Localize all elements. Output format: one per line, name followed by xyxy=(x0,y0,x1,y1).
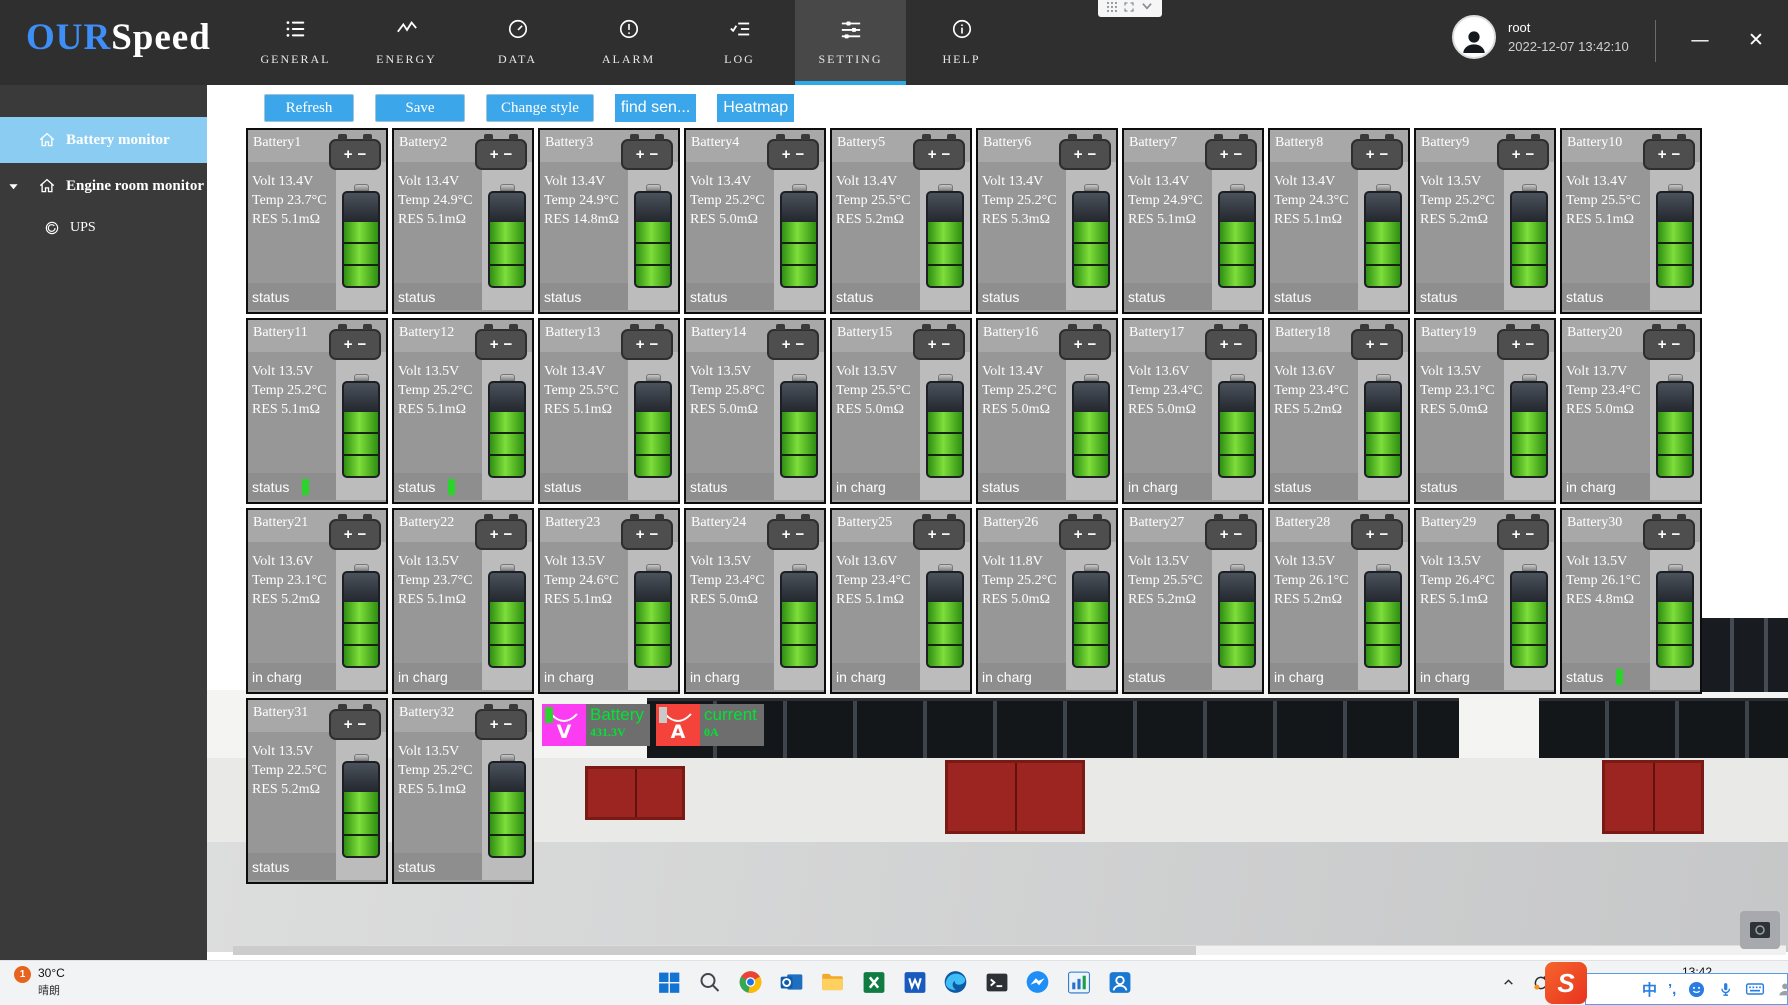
battery-card[interactable]: Battery21 +− Volt 13.6V Temp 23.1°C RES … xyxy=(246,508,388,694)
info-icon xyxy=(951,18,973,45)
battery-temperature: Temp 25.2°C xyxy=(398,381,482,400)
battery-card[interactable]: Battery4 +− Volt 13.4V Temp 25.2°C RES 5… xyxy=(684,128,826,314)
battery-voltage: Volt 13.4V xyxy=(252,172,336,191)
voltage-gauge-value: 431.3V xyxy=(590,725,644,739)
battery-terminals-icon: +− xyxy=(913,139,965,170)
battery-graphic xyxy=(1066,542,1116,690)
battery-graphic xyxy=(628,542,678,690)
terminal-icon[interactable] xyxy=(983,968,1011,996)
battery-card[interactable]: Battery13 +− Volt 13.4V Temp 25.5°C RES … xyxy=(538,318,680,504)
battery-card[interactable]: Battery15 +− Volt 13.5V Temp 25.5°C RES … xyxy=(830,318,972,504)
battery-graphic xyxy=(336,352,386,500)
battery-name: Battery28 xyxy=(1270,510,1330,531)
keyboard-icon[interactable] xyxy=(1745,979,1765,999)
gauge-indicator-bar xyxy=(659,707,667,723)
voltmeter-icon: V xyxy=(542,704,586,746)
taskbar: 1 30°C 晴朗 中 拼 13:42 中 ’, 10 S xyxy=(0,960,1788,1005)
battery-terminals-icon: +− xyxy=(1643,519,1695,550)
battery-status: in charg xyxy=(836,479,886,495)
edge-icon[interactable] xyxy=(942,968,970,996)
battery-temperature: Temp 26.1°C xyxy=(1274,571,1358,590)
battery-temperature: Temp 25.2°C xyxy=(1420,191,1504,210)
battery-resistance: RES 5.2mΩ xyxy=(1274,400,1358,419)
battery-resistance: RES 5.0mΩ xyxy=(690,210,774,229)
battery-status-row: in charg xyxy=(248,663,336,690)
battery-resistance: RES 4.8mΩ xyxy=(1566,590,1650,609)
battery-graphic xyxy=(1504,352,1554,500)
battery-status-row: in charg xyxy=(1416,663,1504,690)
battery-name: Battery29 xyxy=(1416,510,1476,531)
battery-card[interactable]: Battery14 +− Volt 13.5V Temp 25.8°C RES … xyxy=(684,318,826,504)
titlebar-divider xyxy=(1655,20,1656,62)
battery-name: Battery8 xyxy=(1270,130,1323,151)
battery-card[interactable]: Battery31 +− Volt 13.5V Temp 22.5°C RES … xyxy=(246,698,388,884)
battery-temperature: Temp 25.8°C xyxy=(690,381,774,400)
battery-status: status xyxy=(1128,289,1165,305)
battery-temperature: Temp 23.7°C xyxy=(252,191,336,210)
notification-badge[interactable]: 1 xyxy=(14,966,31,983)
start-icon[interactable] xyxy=(655,968,683,996)
battery-status-row: status xyxy=(1416,473,1504,500)
battery-card[interactable]: Battery16 +− Volt 13.4V Temp 25.2°C RES … xyxy=(976,318,1118,504)
battery-graphic xyxy=(774,352,824,500)
tab-log[interactable]: LOG xyxy=(684,0,795,85)
taskbar-icons xyxy=(655,968,1134,996)
battery-voltage: Volt 13.5V xyxy=(398,552,482,571)
battery-resistance: RES 5.0mΩ xyxy=(1128,400,1212,419)
battery-temperature: Temp 23.4°C xyxy=(836,571,920,590)
battery-resistance: RES 5.1mΩ xyxy=(398,210,482,229)
total-voltage-gauge[interactable]: V Battery 431.3V xyxy=(542,704,650,746)
battery-status-row: in charg xyxy=(832,473,920,500)
battery-card[interactable]: Battery1 +− Volt 13.4V Temp 23.7°C RES 5… xyxy=(246,128,388,314)
battery-terminals-icon: +− xyxy=(621,519,673,550)
battery-temperature: Temp 24.9°C xyxy=(1128,191,1212,210)
dots-grid-icon xyxy=(1106,0,1118,18)
battery-status: status xyxy=(1274,289,1311,305)
battery-status: in charg xyxy=(690,669,740,685)
floating-capture-widget[interactable] xyxy=(1098,0,1162,17)
battery-card[interactable]: Battery28 +− Volt 13.5V Temp 26.1°C RES … xyxy=(1268,508,1410,694)
battery-name: Battery19 xyxy=(1416,320,1476,341)
tab-general[interactable]: GENERAL xyxy=(240,0,351,85)
battery-name: Battery13 xyxy=(540,320,600,341)
battery-card[interactable]: Battery29 +− Volt 13.5V Temp 26.4°C RES … xyxy=(1414,508,1556,694)
battery-graphic xyxy=(482,542,532,690)
change-style-button[interactable]: Change style xyxy=(486,94,594,122)
weather-widget[interactable]: 1 30°C 晴朗 xyxy=(38,966,65,998)
battery-graphic xyxy=(1358,162,1408,310)
battery-status: status xyxy=(544,289,581,305)
battery-temperature: Temp 23.1°C xyxy=(1420,381,1504,400)
battery-name: Battery32 xyxy=(394,700,454,721)
tab-help[interactable]: HELP xyxy=(906,0,1017,85)
battery-charge-indicator xyxy=(448,479,455,495)
battery-resistance: RES 5.0mΩ xyxy=(1420,400,1504,419)
current-gauge-value: 0A xyxy=(704,725,758,739)
close-button[interactable]: ✕ xyxy=(1734,22,1778,58)
battery-resistance: RES 5.0mΩ xyxy=(982,590,1066,609)
battery-name: Battery30 xyxy=(1562,510,1622,531)
battery-voltage: Volt 13.5V xyxy=(1420,172,1504,191)
battery-status-row: in charg xyxy=(832,663,920,690)
battery-name: Battery22 xyxy=(394,510,454,531)
scrollbar-thumb[interactable] xyxy=(233,946,1196,955)
battery-voltage: Volt 13.5V xyxy=(398,362,482,381)
battery-voltage: Volt 13.4V xyxy=(544,362,628,381)
battery-card[interactable]: Battery10 +− Volt 13.4V Temp 25.5°C RES … xyxy=(1560,128,1702,314)
battery-graphic xyxy=(1212,542,1262,690)
toolbar: RefreshSaveChange stylefind sen...Heatma… xyxy=(264,94,794,122)
battery-name: Battery1 xyxy=(248,130,301,151)
battery-status: in charg xyxy=(398,669,448,685)
battery-resistance: RES 5.0mΩ xyxy=(690,400,774,419)
battery-graphic xyxy=(336,542,386,690)
ups-icon xyxy=(44,220,60,236)
battery-card[interactable]: Battery11 +− Volt 13.5V Temp 25.2°C RES … xyxy=(246,318,388,504)
battery-card[interactable]: Battery22 +− Volt 13.5V Temp 23.7°C RES … xyxy=(392,508,534,694)
battery-resistance: RES 5.3mΩ xyxy=(982,210,1066,229)
battery-status: status xyxy=(398,479,435,495)
avatar[interactable] xyxy=(1452,15,1496,59)
battery-temperature: Temp 23.4°C xyxy=(1274,381,1358,400)
battery-graphic xyxy=(482,352,532,500)
stats-icon[interactable] xyxy=(1065,968,1093,996)
word-icon[interactable] xyxy=(901,968,929,996)
battery-card[interactable]: Battery2 +− Volt 13.4V Temp 24.9°C RES 5… xyxy=(392,128,534,314)
battery-terminals-icon: +− xyxy=(475,139,527,170)
battery-temperature: Temp 25.2°C xyxy=(398,761,482,780)
ime-punctuation-toggle[interactable]: ’, xyxy=(1668,981,1676,998)
battery-temperature: Temp 25.2°C xyxy=(982,571,1066,590)
battery-resistance: RES 5.2mΩ xyxy=(1420,210,1504,229)
battery-voltage: Volt 13.6V xyxy=(252,552,336,571)
battery-status: status xyxy=(1566,289,1603,305)
battery-status: in charg xyxy=(1128,479,1178,495)
battery-terminals-icon: +− xyxy=(913,329,965,360)
battery-card[interactable]: Battery17 +− Volt 13.6V Temp 23.4°C RES … xyxy=(1122,318,1264,504)
battery-status: status xyxy=(836,289,873,305)
microphone-icon[interactable] xyxy=(1717,981,1734,998)
search-icon[interactable] xyxy=(696,968,724,996)
battery-voltage: Volt 13.4V xyxy=(1274,172,1358,191)
tab-data[interactable]: DATA xyxy=(462,0,573,85)
battery-status: status xyxy=(398,859,435,875)
battery-resistance: RES 5.2mΩ xyxy=(252,780,336,799)
tab-alarm[interactable]: ALARM xyxy=(573,0,684,85)
battery-name: Battery23 xyxy=(540,510,600,531)
battery-temperature: Temp 25.2°C xyxy=(982,381,1066,400)
battery-status: status xyxy=(252,859,289,875)
battery-terminals-icon: +− xyxy=(329,329,381,360)
battery-status: status xyxy=(1566,669,1603,685)
battery-terminals-icon: +− xyxy=(1351,139,1403,170)
battery-status-row: status xyxy=(1270,473,1358,500)
battery-temperature: Temp 25.5°C xyxy=(1566,191,1650,210)
battery-status-row: status xyxy=(248,283,336,310)
battery-voltage: Volt 13.5V xyxy=(690,552,774,571)
battery-status: in charg xyxy=(1420,669,1470,685)
battery-name: Battery17 xyxy=(1124,320,1184,341)
minimize-button[interactable]: — xyxy=(1678,22,1722,58)
battery-terminals-icon: +− xyxy=(329,519,381,550)
battery-resistance: RES 5.0mΩ xyxy=(836,400,920,419)
battery-temperature: Temp 25.5°C xyxy=(836,191,920,210)
battery-resistance: RES 5.2mΩ xyxy=(252,590,336,609)
battery-status-row: status xyxy=(1562,663,1650,690)
battery-voltage: Volt 13.4V xyxy=(690,172,774,191)
excel-icon[interactable] xyxy=(860,968,888,996)
battery-terminals-icon: +− xyxy=(767,519,819,550)
battery-card[interactable]: Battery8 +− Volt 13.4V Temp 24.3°C RES 5… xyxy=(1268,128,1410,314)
battery-name: Battery7 xyxy=(1124,130,1177,151)
battery-card[interactable]: Battery27 +− Volt 13.5V Temp 25.5°C RES … xyxy=(1122,508,1264,694)
battery-resistance: RES 5.1mΩ xyxy=(1274,210,1358,229)
battery-status: status xyxy=(1274,479,1311,495)
battery-status-row: status xyxy=(540,473,628,500)
battery-temperature: Temp 25.2°C xyxy=(690,191,774,210)
battery-terminals-icon: +− xyxy=(1351,519,1403,550)
battery-terminals-icon: +− xyxy=(767,329,819,360)
battery-status: status xyxy=(398,289,435,305)
battery-temperature: Temp 23.1°C xyxy=(252,571,336,590)
summary-gauges: V Battery 431.3V A current 0A xyxy=(542,704,764,746)
battery-name: Battery4 xyxy=(686,130,739,151)
battery-resistance: RES 5.2mΩ xyxy=(1128,590,1212,609)
battery-status: in charg xyxy=(836,669,886,685)
battery-name: Battery25 xyxy=(832,510,892,531)
battery-voltage: Volt 13.5V xyxy=(1566,552,1650,571)
battery-card[interactable]: Battery25 +− Volt 13.6V Temp 23.4°C RES … xyxy=(830,508,972,694)
battery-name: Battery5 xyxy=(832,130,885,151)
home-icon xyxy=(38,131,56,149)
battery-voltage: Volt 13.5V xyxy=(1274,552,1358,571)
monitor-icon[interactable] xyxy=(1106,968,1134,996)
weather-desc: 晴朗 xyxy=(38,982,65,998)
battery-voltage: Volt 13.4V xyxy=(982,172,1066,191)
outlook-icon[interactable] xyxy=(778,968,806,996)
battery-graphic xyxy=(628,162,678,310)
battery-temperature: Temp 24.6°C xyxy=(544,571,628,590)
battery-status: status xyxy=(544,479,581,495)
battery-temperature: Temp 26.4°C xyxy=(1420,571,1504,590)
battery-resistance: RES 5.1mΩ xyxy=(398,400,482,419)
home-icon xyxy=(38,177,56,195)
battery-status-row: in charg xyxy=(1124,473,1212,500)
sidebar-item-engine-room-monitor[interactable]: Engine room monitor xyxy=(0,163,207,209)
battery-voltage: Volt 13.5V xyxy=(1420,362,1504,381)
battery-status: in charg xyxy=(252,669,302,685)
sidebar: Battery monitor Engine room monitor UPS xyxy=(0,85,207,960)
battery-voltage: Volt 13.4V xyxy=(544,172,628,191)
battery-name: Battery12 xyxy=(394,320,454,341)
battery-temperature: Temp 25.2°C xyxy=(252,381,336,400)
battery-status: in charg xyxy=(544,669,594,685)
battery-terminals-icon: +− xyxy=(475,709,527,740)
battery-card[interactable]: Battery5 +− Volt 13.4V Temp 25.5°C RES 5… xyxy=(830,128,972,314)
battery-voltage: Volt 13.5V xyxy=(252,362,336,381)
battery-terminals-icon: +− xyxy=(475,519,527,550)
battery-card[interactable]: Battery24 +− Volt 13.5V Temp 23.4°C RES … xyxy=(684,508,826,694)
battery-terminals-icon: +− xyxy=(621,329,673,360)
current-gauge-label: current xyxy=(704,705,758,725)
battery-graphic xyxy=(774,542,824,690)
battery-temperature: Temp 25.5°C xyxy=(836,381,920,400)
battery-status: status xyxy=(252,479,289,495)
battery-graphic xyxy=(1358,542,1408,690)
battery-status-row: in charg xyxy=(686,663,774,690)
battery-terminals-icon: +− xyxy=(329,139,381,170)
ime-account-icon[interactable]: 10 xyxy=(1776,980,1788,998)
battery-name: Battery27 xyxy=(1124,510,1184,531)
battery-temperature: Temp 25.5°C xyxy=(1128,571,1212,590)
emoji-icon[interactable] xyxy=(1687,980,1706,999)
main-content: RefreshSaveChange stylefind sen...Heatma… xyxy=(207,85,1788,960)
horizontal-scrollbar[interactable] xyxy=(233,945,1786,955)
svg-text:V: V xyxy=(557,721,572,743)
nav-tabs: GENERAL ENERGY DATA ALARM LOG SETTING HE… xyxy=(240,0,1017,85)
floating-tool-button[interactable] xyxy=(1740,911,1780,949)
battery-name: Battery2 xyxy=(394,130,447,151)
sidebar-item-battery-monitor[interactable]: Battery monitor xyxy=(0,117,207,163)
battery-name: Battery18 xyxy=(1270,320,1330,341)
battery-voltage: Volt 13.4V xyxy=(1128,172,1212,191)
battery-voltage: Volt 13.4V xyxy=(1566,172,1650,191)
battery-status-row: status xyxy=(394,283,482,310)
save-button[interactable]: Save xyxy=(375,94,465,122)
battery-temperature: Temp 22.5°C xyxy=(252,761,336,780)
battery-voltage: Volt 13.5V xyxy=(1420,552,1504,571)
tab-energy[interactable]: ENERGY xyxy=(351,0,462,85)
battery-status: status xyxy=(1420,479,1457,495)
battery-graphic xyxy=(336,732,386,880)
folder-icon[interactable] xyxy=(819,968,847,996)
logo-speed: Speed xyxy=(111,17,211,58)
battery-resistance: RES 5.1mΩ xyxy=(252,400,336,419)
ime-mode-toggle[interactable]: 中 xyxy=(1642,979,1657,1000)
battery-monitor-app: OURSpeed GENERAL ENERGY DATA ALARM LOG S… xyxy=(0,0,1788,1005)
battery-name: Battery16 xyxy=(978,320,1038,341)
battery-status: in charg xyxy=(982,669,1032,685)
battery-status: status xyxy=(982,289,1019,305)
battery-terminals-icon: +− xyxy=(475,329,527,360)
ime-toolbar: 中 ’, 10 xyxy=(1585,973,1788,1005)
battery-resistance: RES 5.0mΩ xyxy=(690,590,774,609)
battery-status-row: status xyxy=(978,283,1066,310)
log-icon xyxy=(729,18,751,45)
refresh-button[interactable]: Refresh xyxy=(264,94,354,122)
battery-charge-indicator xyxy=(1616,669,1623,685)
battery-graphic xyxy=(1650,352,1700,500)
login-datetime: 2022-12-07 13:42:10 xyxy=(1508,39,1629,54)
app-logo: OURSpeed xyxy=(26,16,211,59)
battery-resistance: RES 5.2mΩ xyxy=(1274,590,1358,609)
battery-graphic xyxy=(482,732,532,880)
battery-card[interactable]: Battery26 +− Volt 11.8V Temp 25.2°C RES … xyxy=(976,508,1118,694)
battery-graphic xyxy=(482,162,532,310)
battery-resistance: RES 5.1mΩ xyxy=(836,590,920,609)
battery-voltage: Volt 13.5V xyxy=(836,362,920,381)
battery-status-row: status xyxy=(1124,283,1212,310)
battery-status-row: status xyxy=(832,283,920,310)
sidebar-item-ups[interactable]: UPS xyxy=(0,209,207,247)
tab-setting[interactable]: SETTING xyxy=(795,0,906,85)
find-sen-button[interactable]: find sen... xyxy=(615,94,696,122)
sogou-ime-logo[interactable]: S xyxy=(1545,962,1587,1004)
battery-graphic xyxy=(920,162,970,310)
energy-icon xyxy=(396,18,418,45)
battery-temperature: Temp 26.1°C xyxy=(1566,571,1650,590)
battery-status-row: in charg xyxy=(540,663,628,690)
battery-card[interactable]: Battery18 +− Volt 13.6V Temp 23.4°C RES … xyxy=(1268,318,1410,504)
user-area[interactable]: root 2022-12-07 13:42:10 xyxy=(1452,15,1629,59)
battery-card[interactable]: Battery20 +− Volt 13.7V Temp 23.4°C RES … xyxy=(1560,318,1702,504)
battery-status-row: in charg xyxy=(1270,663,1358,690)
chrome-icon[interactable] xyxy=(737,968,765,996)
battery-graphic xyxy=(1504,542,1554,690)
sliders-icon xyxy=(840,18,862,45)
battery-status-row: status xyxy=(686,283,774,310)
voltage-gauge-label: Battery xyxy=(590,705,644,725)
battery-card[interactable]: Battery19 +− Volt 13.5V Temp 23.1°C RES … xyxy=(1414,318,1556,504)
total-current-gauge[interactable]: A current 0A xyxy=(656,704,764,746)
battery-terminals-icon: +− xyxy=(1059,519,1111,550)
caret-down-icon xyxy=(0,181,26,192)
messenger-icon[interactable] xyxy=(1024,968,1052,996)
battery-status: status xyxy=(1128,669,1165,685)
battery-terminals-icon: +− xyxy=(1643,329,1695,360)
battery-graphic xyxy=(628,352,678,500)
battery-resistance: RES 14.8mΩ xyxy=(544,210,628,229)
battery-card[interactable]: Battery7 +− Volt 13.4V Temp 24.9°C RES 5… xyxy=(1122,128,1264,314)
battery-terminals-icon: +− xyxy=(1059,139,1111,170)
battery-resistance: RES 5.1mΩ xyxy=(544,400,628,419)
list-icon xyxy=(285,18,307,45)
battery-status-row: status xyxy=(978,473,1066,500)
battery-name: Battery9 xyxy=(1416,130,1469,151)
battery-voltage: Volt 13.6V xyxy=(1128,362,1212,381)
hidden-icons-chevron[interactable] xyxy=(1502,976,1515,992)
battery-status-row: status xyxy=(540,283,628,310)
battery-graphic xyxy=(1358,352,1408,500)
logo-our: OUR xyxy=(26,17,111,58)
battery-temperature: Temp 24.9°C xyxy=(398,191,482,210)
battery-status-row: in charg xyxy=(1562,473,1650,500)
battery-card[interactable]: Battery12 +− Volt 13.5V Temp 25.2°C RES … xyxy=(392,318,534,504)
battery-voltage: Volt 13.6V xyxy=(836,552,920,571)
battery-voltage: Volt 13.4V xyxy=(836,172,920,191)
battery-resistance: RES 5.1mΩ xyxy=(398,780,482,799)
battery-card[interactable]: Battery32 +− Volt 13.5V Temp 25.2°C RES … xyxy=(392,698,534,884)
battery-status-row: status xyxy=(686,473,774,500)
battery-graphic xyxy=(1650,542,1700,690)
battery-charge-indicator xyxy=(302,479,309,495)
chevron-down-icon xyxy=(1140,0,1154,18)
battery-card[interactable]: Battery9 +− Volt 13.5V Temp 25.2°C RES 5… xyxy=(1414,128,1556,314)
battery-status-row: status xyxy=(248,853,336,880)
battery-card[interactable]: Battery6 +− Volt 13.4V Temp 25.2°C RES 5… xyxy=(976,128,1118,314)
battery-status: status xyxy=(252,289,289,305)
battery-terminals-icon: +− xyxy=(1059,329,1111,360)
battery-graphic xyxy=(920,542,970,690)
battery-status-row: status xyxy=(394,473,482,500)
battery-card[interactable]: Battery30 +− Volt 13.5V Temp 26.1°C RES … xyxy=(1560,508,1702,694)
battery-status-row: status xyxy=(1124,663,1212,690)
battery-card[interactable]: Battery23 +− Volt 13.5V Temp 24.6°C RES … xyxy=(538,508,680,694)
weather-temp: 30°C xyxy=(38,966,65,980)
heatmap-button[interactable]: Heatmap xyxy=(717,94,794,122)
battery-card[interactable]: Battery3 +− Volt 13.4V Temp 24.9°C RES 1… xyxy=(538,128,680,314)
